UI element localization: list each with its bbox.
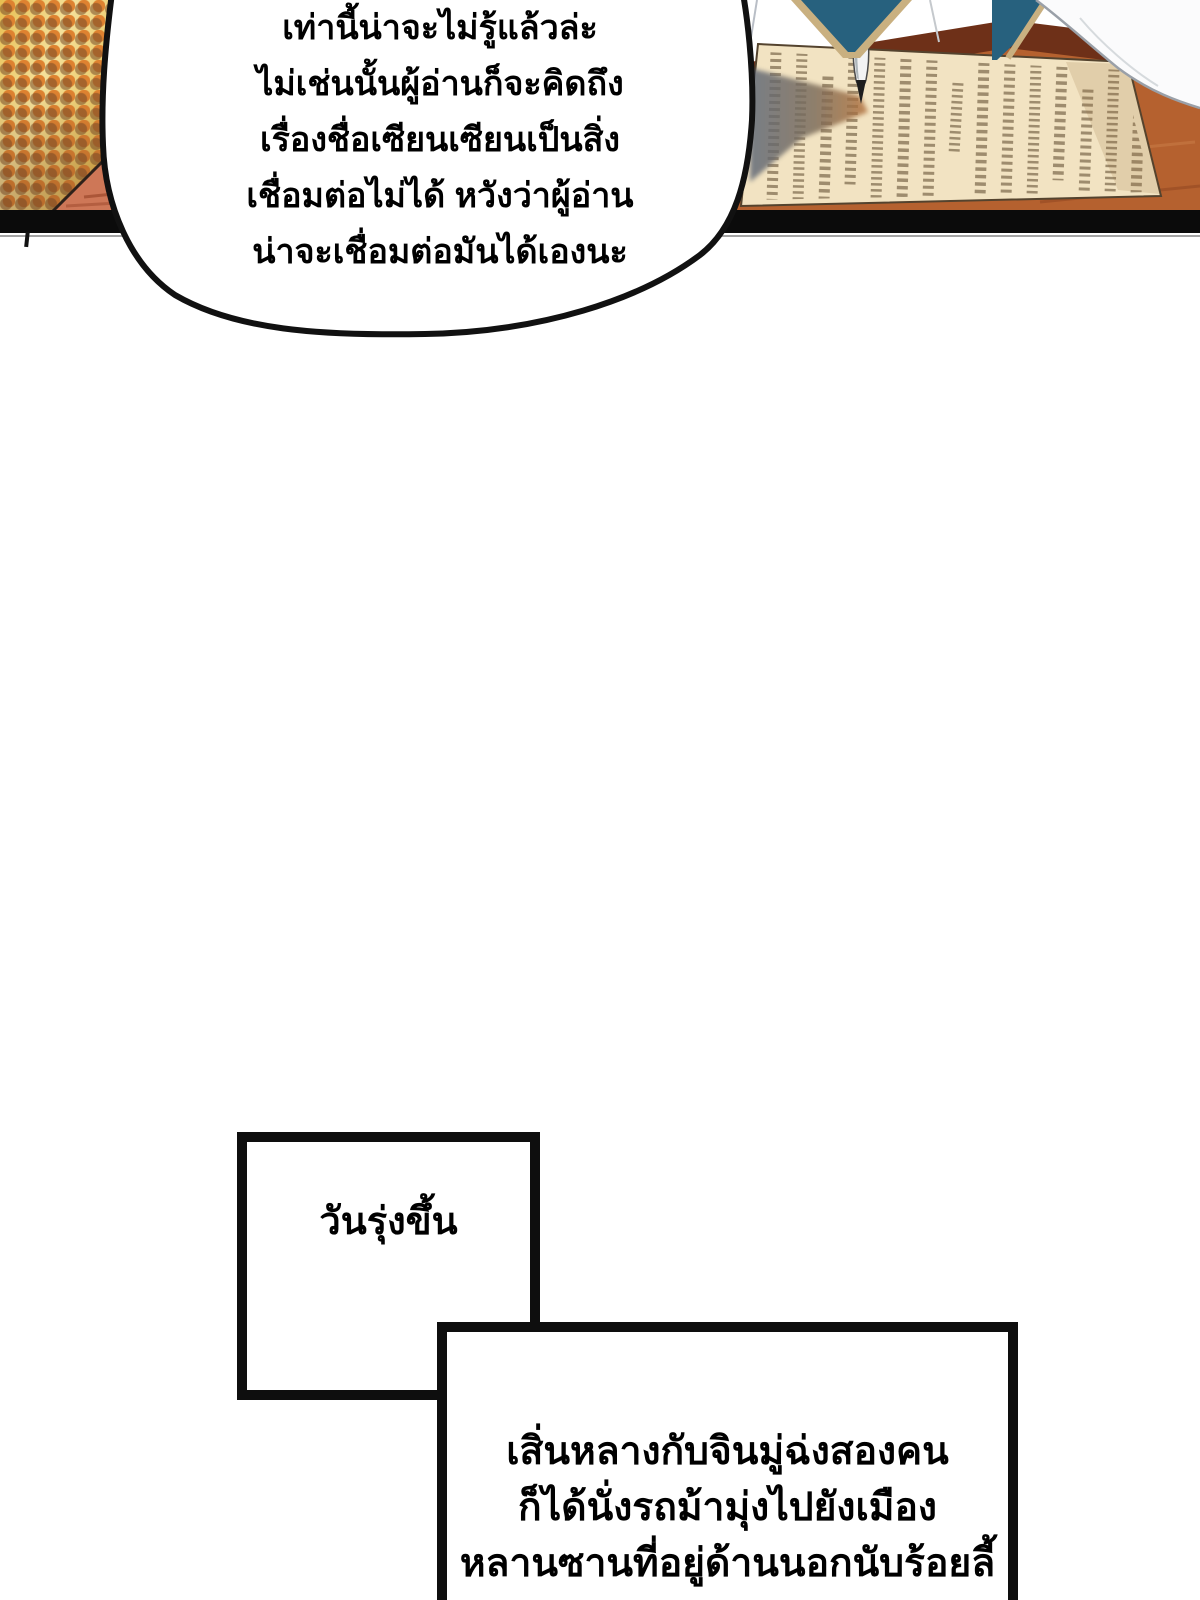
corner-tick (24, 232, 30, 247)
caption-line: เสิ่นหลางกับจินมู่ฉ่งสองคน (447, 1424, 1008, 1480)
bubble-line: เท่านี้น่าจะไม่รู้แล้วล่ะ (150, 0, 730, 56)
bubble-line: ไม่เช่นนั้นผู้อ่านก็จะคิดถึง (150, 56, 730, 112)
caption-line: ก็ได้นั่งรถม้ามุ่งไปยังเมือง (447, 1480, 1008, 1536)
caption-line: หลานซานที่อยู่ด้านนอกนับร้อยลี้ (447, 1536, 1008, 1592)
speech-bubble-text: เท่านี้น่าจะไม่รู้แล้วล่ะ ไม่เช่นนั้นผู้… (150, 0, 730, 280)
comic-page: เท่านี้น่าจะไม่รู้แล้วล่ะ ไม่เช่นนั้นผู้… (0, 0, 1200, 1600)
paper-scroll (741, 44, 1161, 206)
bubble-line: น่าจะเชื่อมต่อมันได้เองนะ (150, 224, 730, 280)
bubble-line: เชื่อมต่อไม่ได้ หวังว่าผู้อ่าน (150, 168, 730, 224)
bubble-line: เรื่องชื่อเซียนเซียนเป็นสิ่ง (150, 112, 730, 168)
caption-text: วันรุ่งขึ้น (247, 1200, 530, 1244)
caption-box-journey: เสิ่นหลางกับจินมู่ฉ่งสองคน ก็ได้นั่งรถม้… (437, 1322, 1018, 1600)
